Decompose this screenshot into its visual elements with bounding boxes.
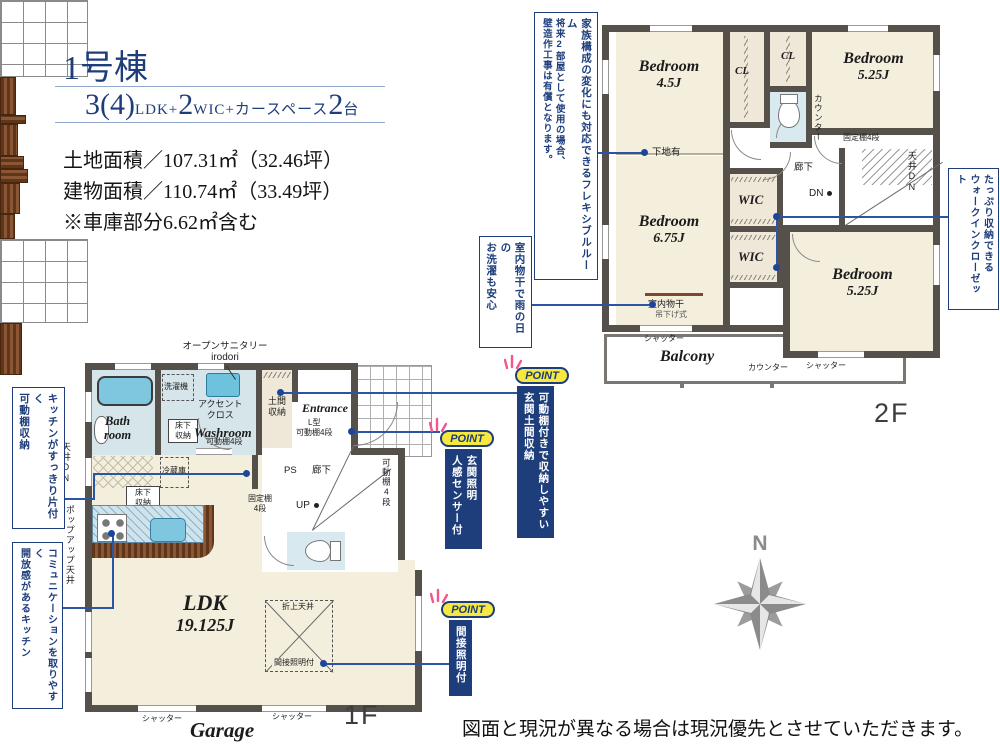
room-size: 4.5J <box>623 76 715 92</box>
annotation-line: 壁造作工事は有償となります。 <box>539 18 552 274</box>
connector-dot <box>649 301 656 308</box>
label-line: 土間 <box>263 396 291 407</box>
label-line: オープンサニタリー <box>175 341 275 352</box>
fixed-shelf-label-2f: 固定棚4段 <box>843 133 879 143</box>
window <box>650 25 692 32</box>
label-line: 床下 <box>171 421 195 431</box>
connector-dot <box>320 660 327 667</box>
hanger-pipe <box>263 372 291 378</box>
balcony-label: Balcony <box>660 348 714 366</box>
disclaimer-text: 図面と現況が異なる場合は現況優先とさせていただきます。 <box>462 714 973 741</box>
annotation-kitchen-shelf: キッチンがすっきり片付く 可動棚収納 <box>12 387 65 529</box>
connector <box>777 216 948 218</box>
point-badge-3: POINT <box>441 601 495 618</box>
window <box>115 363 151 370</box>
connector-dot <box>773 264 780 271</box>
room-name: room <box>104 428 131 442</box>
shutter-window <box>138 705 196 712</box>
connector <box>281 392 517 394</box>
window <box>415 596 422 651</box>
connector <box>93 473 245 475</box>
drying-bar <box>645 293 703 296</box>
wall <box>730 122 764 128</box>
floorplan-flyer: 1号棟 3(4) LDK+ 2 WIC+カースペース 2 台 土地面積／107.… <box>0 0 1000 750</box>
label-line: irodori <box>175 352 275 364</box>
room-size: 6.75J <box>623 231 715 247</box>
floor2-label: 2F <box>874 398 910 429</box>
connector <box>512 304 652 306</box>
window <box>85 612 92 652</box>
lshape-label: L型 <box>308 418 320 428</box>
room-name: Bedroom <box>623 58 715 76</box>
ps-shelf-wood <box>0 183 20 214</box>
room-name: Bath <box>104 414 131 428</box>
connector-dot <box>773 213 780 220</box>
open-sanitary-label: オープンサニタリーirodori <box>175 341 275 364</box>
up-label: UP <box>296 500 310 512</box>
wall <box>723 226 783 232</box>
connector-dot <box>348 428 355 435</box>
connector <box>325 663 449 665</box>
layout-summary: 3(4) LDK+ 2 WIC+カースペース 2 台 <box>85 88 359 122</box>
balcony-post <box>680 381 684 388</box>
sink <box>150 518 186 542</box>
label-line: 収納 <box>171 431 195 441</box>
window <box>85 458 92 486</box>
toilet-tank-icon <box>780 94 798 104</box>
annotation-line: 家族構成の変化にも対応できるフレキシブルルーム <box>565 18 593 274</box>
toilet-icon <box>305 540 331 562</box>
bathtub <box>97 376 153 406</box>
annotation-line: コミュニケーションを取りやすく <box>31 548 58 703</box>
ldk-label: LDK19.125J <box>160 590 250 636</box>
ldk-area <box>92 560 415 705</box>
compass: N <box>695 532 825 664</box>
annotation-kitchen-communication: コミュニケーションを取りやすく 開放感があるキッチン <box>12 542 63 709</box>
compass-rose-icon <box>695 532 825 664</box>
hanger-pipe <box>731 219 776 224</box>
room-name: Bedroom <box>623 213 715 231</box>
up-dot <box>314 503 319 508</box>
wic-1-label: WIC <box>738 193 763 208</box>
building-number: 1号棟 <box>63 50 148 87</box>
layout-ldk-unit: LDK+ <box>135 102 178 119</box>
closet-2-label: CL <box>781 50 795 63</box>
hanger-pipe <box>731 275 776 280</box>
layout-wic-unit: WIC+カースペース <box>193 98 328 119</box>
ceiling-hatch-1f <box>93 456 153 488</box>
point-line: 間接照明付 <box>453 626 468 690</box>
indirect-light-label: 間接照明付 <box>272 658 316 668</box>
label-line: 4段 <box>248 504 272 514</box>
connector <box>93 473 95 500</box>
bedroom-525-top-label: Bedroom5.25J <box>826 50 921 84</box>
land-area: 土地面積／107.31㎡（32.46坪） <box>63 146 343 177</box>
room-size: 5.25J <box>826 68 921 84</box>
window <box>848 25 888 32</box>
room-size: 19.125J <box>160 615 250 636</box>
ps-label: PS <box>284 465 297 476</box>
wall <box>723 282 783 288</box>
window <box>933 245 940 285</box>
movable-shelf-wood <box>0 323 22 375</box>
washer-label: 洗濯機 <box>164 382 188 392</box>
corridor-label-2f: 廊下 <box>794 162 813 173</box>
room-name: LDK <box>160 590 250 615</box>
label-line: 収納 <box>263 407 291 418</box>
shitaji-label: 下地有 <box>652 147 681 158</box>
wall <box>764 32 770 128</box>
window <box>933 55 940 91</box>
window <box>85 658 92 692</box>
label-line: 固定棚 <box>248 494 272 504</box>
lshape-shelf-label: 可動棚4段 <box>296 428 332 438</box>
annotation-line: キッチンがすっきり片付く <box>31 393 59 523</box>
building-area: 建物面積／110.74㎡（33.49坪） <box>63 177 343 208</box>
popup-ceiling-label: ポップアップ天井 <box>64 505 74 585</box>
shutter-window <box>262 705 326 712</box>
wall <box>256 370 262 455</box>
annotation-flexible-room: 家族構成の変化にも対応できるフレキシブルルーム 将来2部屋として使用の場合、 壁… <box>534 12 598 280</box>
point-line: 玄関照明 <box>464 455 479 543</box>
ceiling-dn-label-2f: 天井DN <box>906 151 916 193</box>
stairs-1f <box>0 239 88 323</box>
layout-wic-count: 2 <box>178 88 193 122</box>
raised-ceiling-label: 折上天井 <box>280 602 316 612</box>
dn-label: DN <box>809 188 823 200</box>
shutter-label-2f-right: シャッター <box>806 361 846 371</box>
point-line: 人感センサー付 <box>449 455 464 543</box>
ceiling-hatch-2f <box>862 149 932 185</box>
toilet-icon <box>778 100 800 128</box>
connector <box>112 534 114 609</box>
toilet-tank-icon <box>330 541 341 561</box>
shutter-label-2f: シャッター <box>644 334 684 344</box>
closet-1-label: CL <box>735 65 749 78</box>
bedroom-525-bottom-label: Bedroom5.25J <box>815 266 910 300</box>
fixed-shelf-2f <box>0 77 16 115</box>
annotation-wic: たっぷり収納できる ウォークインクローゼット <box>948 168 999 310</box>
bedroom-45-label: Bedroom4.5J <box>623 58 715 92</box>
shutter-label-1f: シャッター <box>142 714 182 724</box>
fixed-shelf-label-1f: 固定棚4段 <box>248 494 272 513</box>
annotation-indoor-drying: 室内物干で雨の日の お洗濯も安心 <box>479 236 532 348</box>
shelf-wood <box>0 169 28 183</box>
garage-note: ※車庫部分6.62㎡含む <box>63 208 343 239</box>
wall <box>770 142 812 148</box>
point-badge-2: POINT <box>440 430 494 447</box>
shelf-wood <box>0 156 24 169</box>
annotation-line: 将来2部屋として使用の場合、 <box>552 18 565 274</box>
divider-line <box>55 86 385 87</box>
window <box>602 60 609 94</box>
bedroom-45-room <box>616 32 723 154</box>
layout-car-unit: 台 <box>343 98 359 119</box>
label-line: 床下 <box>129 488 157 498</box>
annotation-line: たっぷり収納できる <box>980 174 994 304</box>
point-box-entrance-sensor: 玄関照明 人感センサー付 <box>445 449 482 549</box>
ps-shelf-wood <box>0 214 15 239</box>
connector-dot <box>243 470 250 477</box>
wall <box>252 455 258 489</box>
area-info: 土地面積／107.31㎡（32.46坪） 建物面積／110.74㎡（33.49坪… <box>63 146 343 239</box>
room-name: Bedroom <box>815 266 910 284</box>
balcony-counter <box>0 124 18 156</box>
connector-dot <box>108 530 115 537</box>
annotation-line: 開放感があるキッチン <box>17 548 31 703</box>
balcony-post <box>770 381 774 388</box>
balcony-counter-label: カウンター <box>748 363 788 373</box>
dn-dot <box>827 191 832 196</box>
point-box-entrance-storage: 可動棚付きで収納しやすい 玄関土間収納 <box>517 386 554 538</box>
wall <box>155 370 161 455</box>
counter-label-2f: カウンター <box>813 94 822 142</box>
annotation-line: ウォークインクローゼット <box>953 174 980 304</box>
garage-label: Garage <box>190 718 254 742</box>
divider-line <box>55 122 385 123</box>
floor2-plan: Bedroom4.5J Bedroom6.75J Bedroom5.25J Be… <box>0 0 1000 156</box>
fixed-shelf-2f <box>0 115 26 124</box>
movable-shelf-label-right: 可動棚4段 <box>381 458 390 507</box>
shutter-label-1f: シャッター <box>272 712 312 722</box>
window <box>85 392 92 422</box>
building-title: 1号棟 <box>63 40 148 89</box>
point-badge-1: POINT <box>515 367 569 384</box>
floor1-label: 1F <box>344 700 380 731</box>
window <box>640 325 692 332</box>
wall <box>723 154 730 325</box>
connector-dot <box>641 149 648 156</box>
bedroom-675-label: Bedroom6.75J <box>623 213 715 247</box>
point-line: 可動棚付きで収納しやすい <box>536 392 551 532</box>
corridor-label-1f: 廊下 <box>312 465 331 476</box>
wic-2-label: WIC <box>738 250 763 265</box>
annotation-line: お洗濯も安心 <box>484 242 498 342</box>
point-line: 玄関土間収納 <box>521 392 536 532</box>
label-line: アクセント <box>198 399 243 410</box>
room-name: Bedroom <box>826 50 921 68</box>
layout-ldk-count: 3(4) <box>85 88 135 122</box>
annotation-line: 可動棚収納 <box>17 393 31 523</box>
layout-car-count: 2 <box>328 88 343 122</box>
doma-storage-label: 土間収納 <box>263 396 291 418</box>
point-box-indirect-light: 間接照明付 <box>449 620 472 696</box>
bathroom-label: Bathroom <box>104 414 131 443</box>
connector <box>352 431 440 433</box>
wall <box>770 86 806 92</box>
hanger-pipe <box>731 235 776 240</box>
wall <box>292 370 298 402</box>
annotation-line: 室内物干で雨の日の <box>498 242 526 342</box>
window <box>602 225 609 259</box>
window <box>818 351 864 358</box>
connector <box>776 216 778 268</box>
wall <box>783 225 933 232</box>
wall <box>723 32 730 154</box>
room-size: 5.25J <box>815 284 910 300</box>
washroom-label: Washroom <box>194 426 252 441</box>
hanging-type-label: 吊下げ式 <box>655 310 687 320</box>
washbasin <box>206 373 240 397</box>
entrance-label: Entrance <box>298 402 352 416</box>
connector-dot <box>277 389 284 396</box>
